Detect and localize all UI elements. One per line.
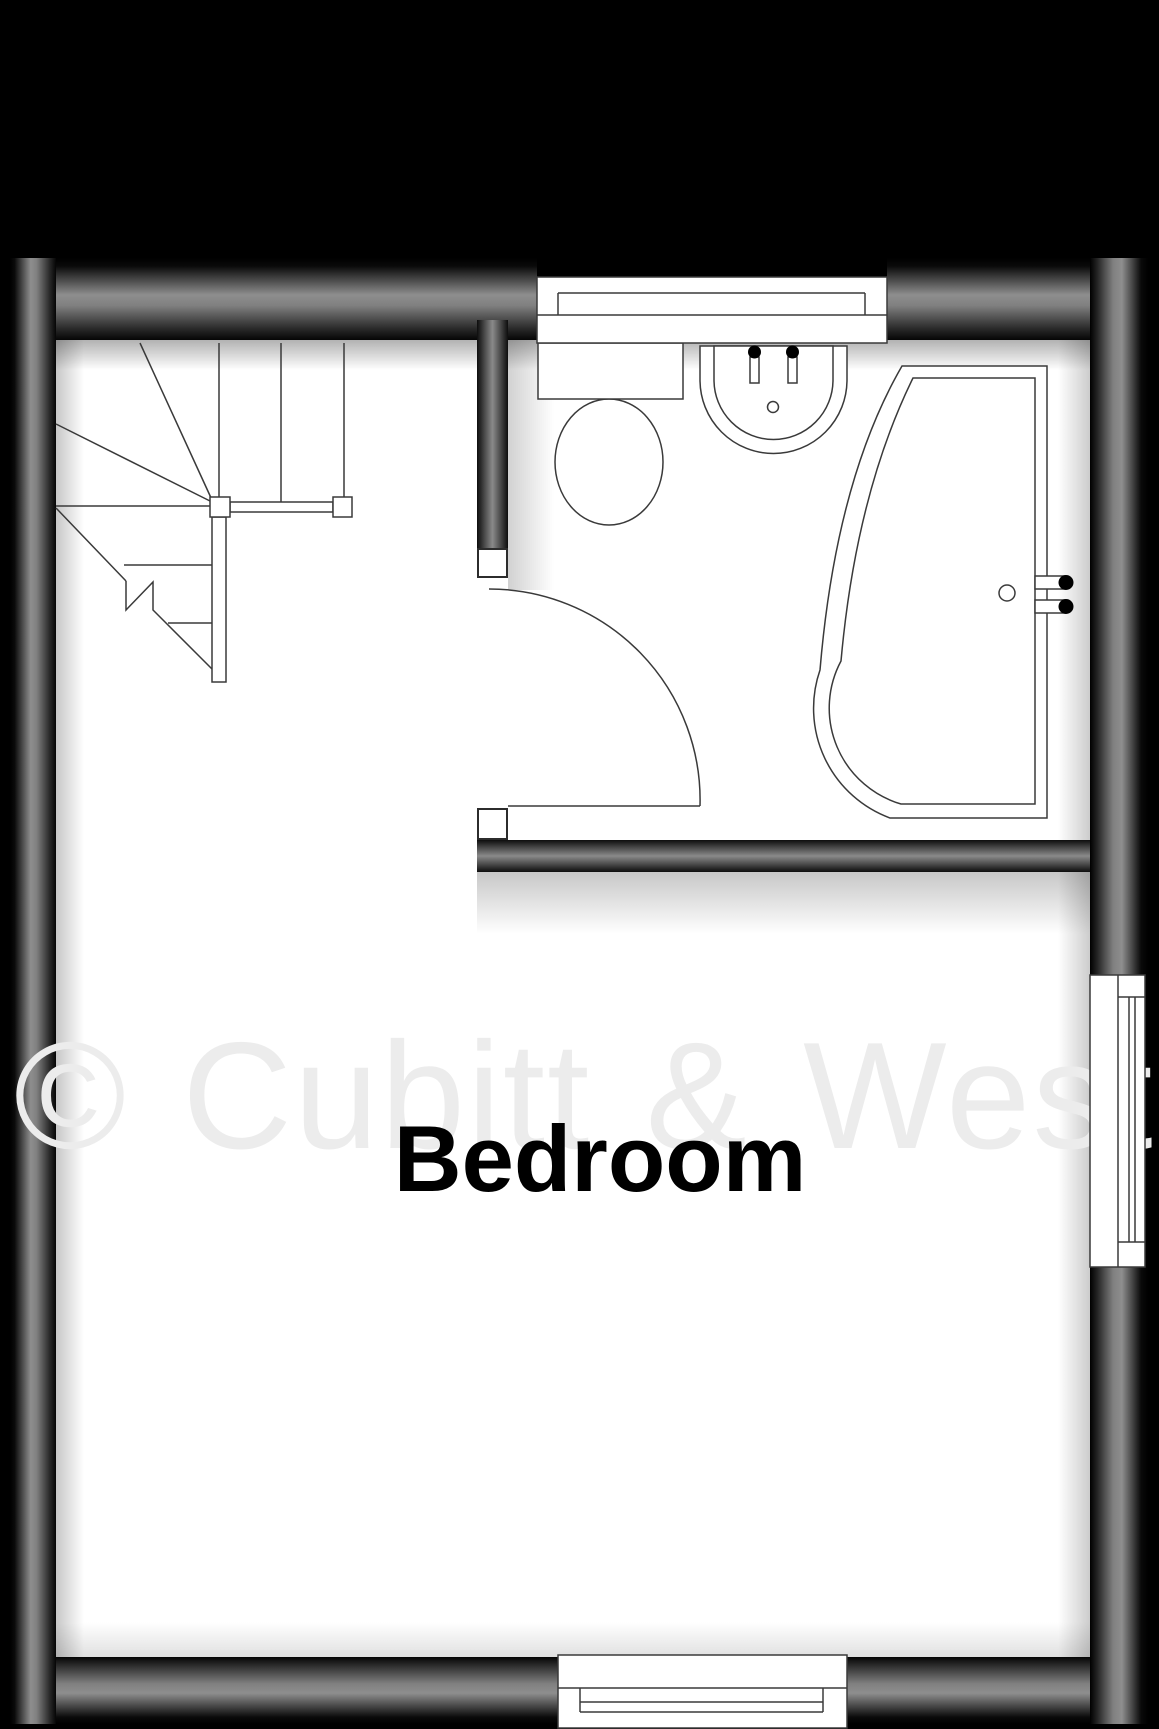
stair-stringer — [212, 517, 226, 682]
floorplan-canvas: © Cubitt & West — [0, 0, 1159, 1729]
bath-icon — [814, 366, 1074, 818]
plan-linework — [0, 0, 1159, 1729]
winder-staircase-icon — [56, 343, 352, 682]
room-label-bedroom: Bedroom — [370, 1112, 830, 1206]
right-window-icon — [1090, 975, 1145, 1267]
bathroom-door-swing-icon — [489, 589, 700, 806]
wash-basin-icon — [700, 346, 847, 454]
bottom-window-icon — [558, 1655, 847, 1728]
stair-handrail-icon — [230, 502, 333, 512]
newel-post — [333, 497, 352, 517]
newel-post — [210, 497, 230, 517]
basin-tap-icon — [750, 357, 759, 383]
basin-tap-icon — [788, 357, 797, 383]
toilet-icon — [538, 343, 683, 525]
top-window-icon — [537, 277, 887, 343]
